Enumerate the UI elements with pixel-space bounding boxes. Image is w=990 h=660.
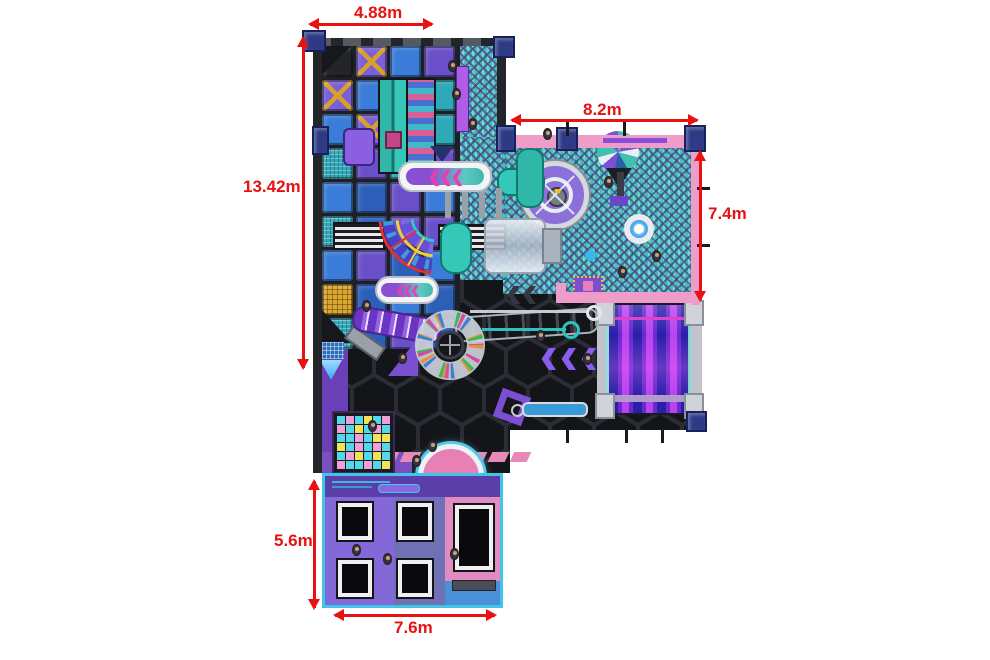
wall-tick <box>566 122 569 136</box>
dim-ballpit-width-arrow <box>512 119 697 122</box>
light-tile <box>337 416 345 424</box>
wall-tick <box>661 429 664 443</box>
slide-start-bar <box>609 317 688 320</box>
trampoline-bed <box>398 503 432 540</box>
dim-trampoline-height-arrow <box>313 481 316 608</box>
light-tile <box>373 443 381 451</box>
court-detail-capsule <box>378 484 420 493</box>
person-figure <box>536 330 545 342</box>
interactive-grid-floor <box>334 413 393 472</box>
support-post <box>496 188 502 218</box>
person-figure <box>468 118 477 130</box>
dim-trampoline-height-label: 5.6m <box>274 531 313 551</box>
light-tile <box>346 452 354 460</box>
person-figure <box>452 88 461 100</box>
play-cell <box>356 182 387 213</box>
giant-slide <box>597 303 700 415</box>
play-cell <box>322 284 353 315</box>
dim-left-height-arrow <box>302 38 305 368</box>
light-tile <box>382 443 390 451</box>
light-tile <box>346 425 354 433</box>
play-cell <box>356 46 387 77</box>
light-tile <box>355 452 363 460</box>
left-wall <box>313 38 322 473</box>
teal-elbow-pipe-vertical <box>516 148 544 208</box>
tent-base <box>610 196 628 206</box>
light-tile <box>355 434 363 442</box>
trampoline-bed <box>338 503 372 540</box>
column-pillar <box>312 126 329 155</box>
dim-trampoline-width-label: 7.6m <box>394 618 433 638</box>
ballpit-top-wall-accent <box>603 138 667 143</box>
floor-plan-canvas: ❮❮❮ ❮❮❮ <box>0 0 990 660</box>
person-figure <box>604 176 613 188</box>
clear-cylinder-roller <box>484 218 546 274</box>
teal-ring <box>562 321 580 339</box>
light-tile <box>364 434 372 442</box>
person-figure <box>543 128 552 140</box>
light-tile <box>373 461 381 469</box>
dim-ballpit-width-label: 8.2m <box>583 100 622 120</box>
person-figure <box>383 553 392 565</box>
wall-tick <box>623 122 626 136</box>
light-tile <box>373 452 381 460</box>
climbing-wall-teal <box>378 78 408 174</box>
light-tile <box>337 461 345 469</box>
light-tile <box>364 452 372 460</box>
support-post <box>462 188 468 218</box>
light-tile <box>355 416 363 424</box>
light-tile <box>337 452 345 460</box>
light-tile <box>337 434 345 442</box>
teal-capsule <box>440 222 472 274</box>
dim-left-height-label: 13.42m <box>243 177 301 197</box>
dim-top-width-arrow <box>310 23 432 26</box>
court-detail-line <box>332 486 372 488</box>
light-tile <box>337 425 345 433</box>
support-post <box>445 188 451 218</box>
light-tile <box>346 434 354 442</box>
trampoline-bed <box>455 505 493 570</box>
person-figure <box>412 455 421 467</box>
dim-trampoline-width-arrow <box>335 614 495 617</box>
light-tile <box>355 461 363 469</box>
person-figure <box>398 352 407 364</box>
light-tile <box>355 443 363 451</box>
dim-top-width-label: 4.88m <box>354 3 402 23</box>
trampoline-bed <box>398 560 432 597</box>
court-detail-line <box>332 481 390 483</box>
column-pillar <box>684 125 706 152</box>
person-figure <box>362 300 371 312</box>
light-tile <box>364 461 372 469</box>
striped-mat <box>406 78 436 174</box>
light-tile <box>382 434 390 442</box>
dim-ballpit-height-arrow <box>699 152 702 300</box>
bench <box>522 402 588 417</box>
tube-slide-chevrons: ❮❮❮ <box>406 168 483 185</box>
person-figure <box>618 266 627 278</box>
light-tile <box>346 416 354 424</box>
wall-tick <box>625 429 628 443</box>
wall-tick <box>566 429 569 443</box>
ball-fountain <box>624 214 654 244</box>
zipline-rod <box>470 310 588 313</box>
light-tile <box>382 461 390 469</box>
person-figure <box>428 440 437 452</box>
person-figure <box>450 548 459 560</box>
light-tile <box>382 416 390 424</box>
slide-end-bar <box>609 395 688 402</box>
play-cell <box>322 182 353 213</box>
column-pillar <box>686 411 707 432</box>
light-tile <box>364 443 372 451</box>
person-figure <box>368 420 377 432</box>
zipline-ring <box>586 305 602 321</box>
play-ball <box>585 250 596 261</box>
top-wall <box>313 38 497 46</box>
tube-slide-upper: ❮❮❮ <box>398 161 492 192</box>
purple-mat <box>343 128 375 166</box>
light-tile <box>355 425 363 433</box>
person-figure <box>352 544 361 556</box>
court-step-mat <box>452 580 496 591</box>
column-pillar <box>496 125 516 152</box>
ballpit-bottom-wall-step <box>556 283 566 303</box>
person-figure <box>652 250 661 262</box>
play-cell <box>322 80 353 111</box>
dim-ballpit-height-label: 7.4m <box>708 204 747 224</box>
column-pillar <box>493 36 515 58</box>
light-tile <box>337 443 345 451</box>
person-figure <box>583 353 592 365</box>
light-tile <box>346 461 354 469</box>
play-cell <box>390 46 421 77</box>
play-cell <box>322 250 353 281</box>
teal-rod <box>482 328 566 331</box>
carousel-marker <box>555 189 560 193</box>
slide-bracket <box>595 393 615 419</box>
tent-post <box>617 172 624 198</box>
donut-slide <box>412 307 488 383</box>
trampoline-court <box>322 473 503 608</box>
fountain-core <box>634 224 644 234</box>
ballpit-bottom-wall-pink <box>565 292 700 303</box>
cylinder-end-cap <box>542 228 562 264</box>
magenta-block <box>385 131 402 149</box>
trampoline-bed <box>338 560 372 597</box>
person-figure <box>448 60 457 72</box>
light-tile <box>382 425 390 433</box>
light-tile <box>346 443 354 451</box>
light-tile <box>373 434 381 442</box>
play-box-core <box>583 281 593 291</box>
support-post <box>479 188 485 218</box>
light-tile <box>382 452 390 460</box>
